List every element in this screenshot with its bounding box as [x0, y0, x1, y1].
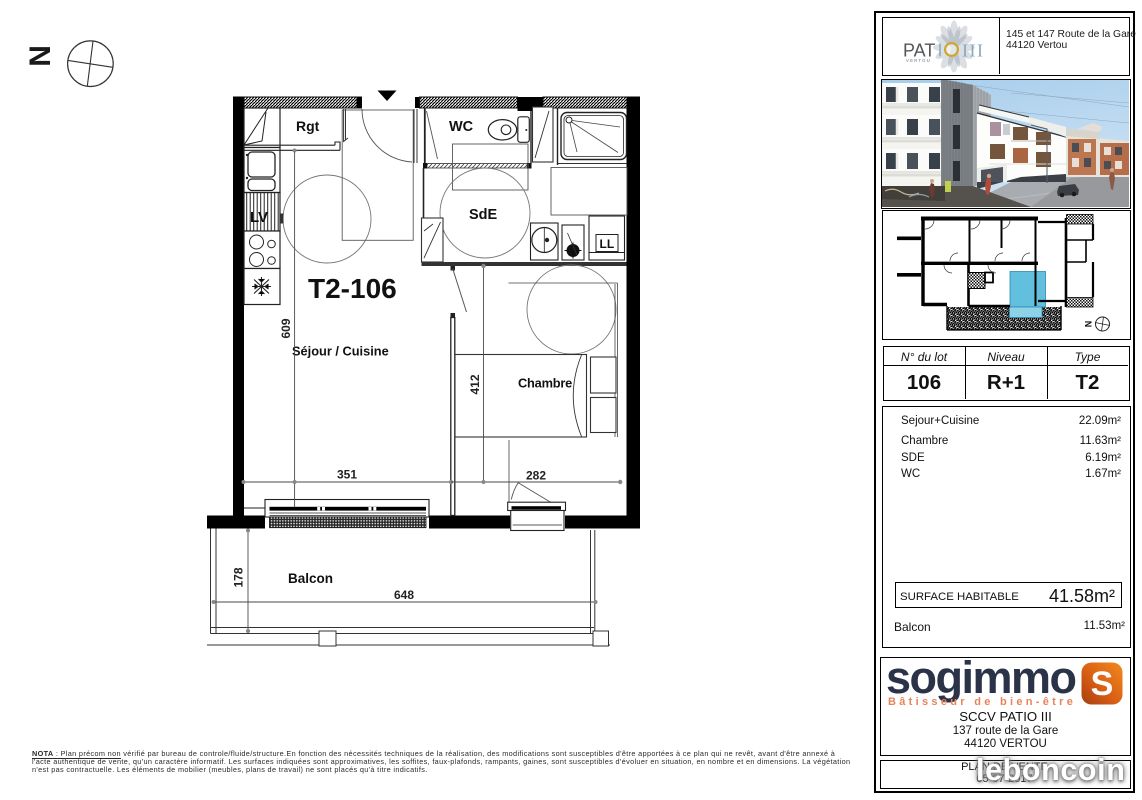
svg-text:WC: WC [449, 119, 474, 135]
svg-text:178: 178 [232, 567, 246, 587]
svg-text:Rgt: Rgt [296, 118, 320, 134]
svg-text:412: 412 [468, 374, 482, 394]
svg-text:282: 282 [526, 469, 546, 483]
svg-text:I: I [938, 41, 943, 61]
svg-text:VERTOU: VERTOU [906, 58, 931, 63]
svg-text:LL: LL [600, 237, 615, 251]
svg-text:Chambre: Chambre [518, 376, 572, 391]
svg-text:Balcon: Balcon [288, 571, 333, 586]
svg-text:609: 609 [279, 318, 293, 338]
svg-text:SdE: SdE [469, 207, 498, 223]
svg-text:III: III [962, 41, 984, 61]
svg-text:S: S [1091, 665, 1114, 703]
svg-text:N: N [1083, 321, 1093, 328]
svg-text:Séjour / Cuisine: Séjour / Cuisine [292, 344, 389, 359]
svg-text:T2-106: T2-106 [308, 273, 397, 304]
svg-text:LV: LV [250, 209, 268, 226]
svg-text:648: 648 [394, 588, 414, 602]
svg-text:N: N [23, 45, 56, 67]
svg-text:351: 351 [337, 468, 357, 482]
